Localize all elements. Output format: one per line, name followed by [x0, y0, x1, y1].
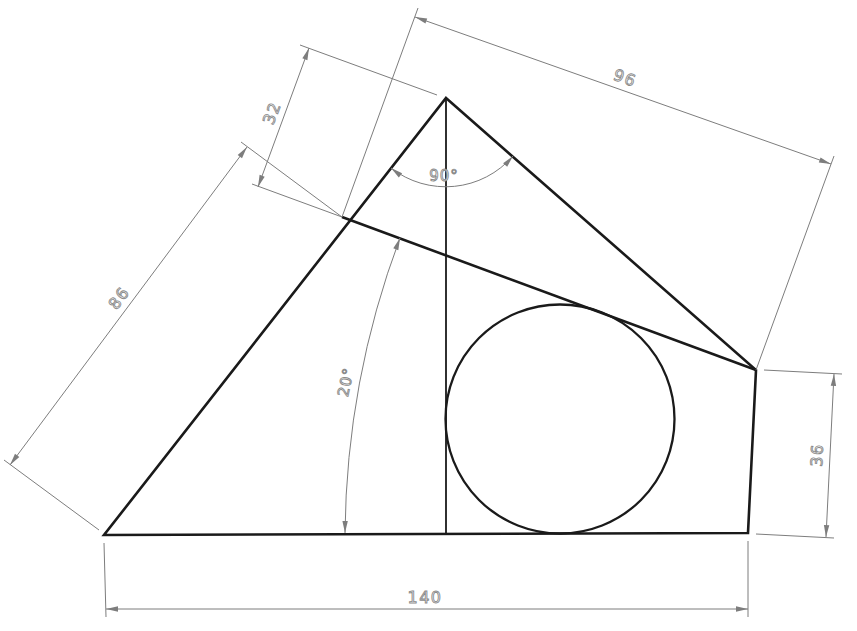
dim-96-extension-line-1 [342, 8, 418, 217]
part-outline [104, 98, 756, 535]
dim-140-extension-line-1 [104, 543, 106, 617]
dim-32-group: 32 [252, 45, 437, 217]
dim-96-extension-line-2 [756, 156, 834, 370]
dim-140-label: 140 [407, 588, 442, 607]
inscribed-circle [446, 305, 675, 534]
dim-32-extension-line-1 [300, 45, 437, 95]
dim-86-group: 86 [4, 142, 342, 530]
dim-86-extension-line-1 [4, 460, 99, 530]
dim-36-group: 36 [756, 370, 842, 538]
cad-drawing: 96 32 86 140 36 [0, 0, 857, 631]
dim-86-line [10, 147, 247, 465]
dim-96-label: 96 [611, 65, 639, 91]
dim-32-extension-line-2 [252, 184, 342, 217]
angle-20-group: 20° [334, 238, 400, 533]
dim-140-group: 140 [104, 541, 748, 617]
dim-36-extension-line-2 [756, 534, 834, 538]
technical-drawing-canvas: 96 32 86 140 36 [0, 0, 857, 631]
dim-96-group: 96 [342, 8, 834, 370]
chord-line [342, 217, 756, 370]
dim-86-extension-line-2 [241, 142, 342, 217]
angle-90-group: 90° [391, 156, 513, 187]
dim-96-line [415, 17, 831, 164]
angle-90-label: 90° [429, 167, 459, 185]
angle-20-label: 20° [334, 366, 358, 399]
dim-36-extension-line-1 [764, 370, 842, 374]
dim-36-line [826, 374, 834, 537]
dim-36-label: 36 [807, 443, 827, 467]
dim-86-label: 86 [104, 283, 133, 313]
